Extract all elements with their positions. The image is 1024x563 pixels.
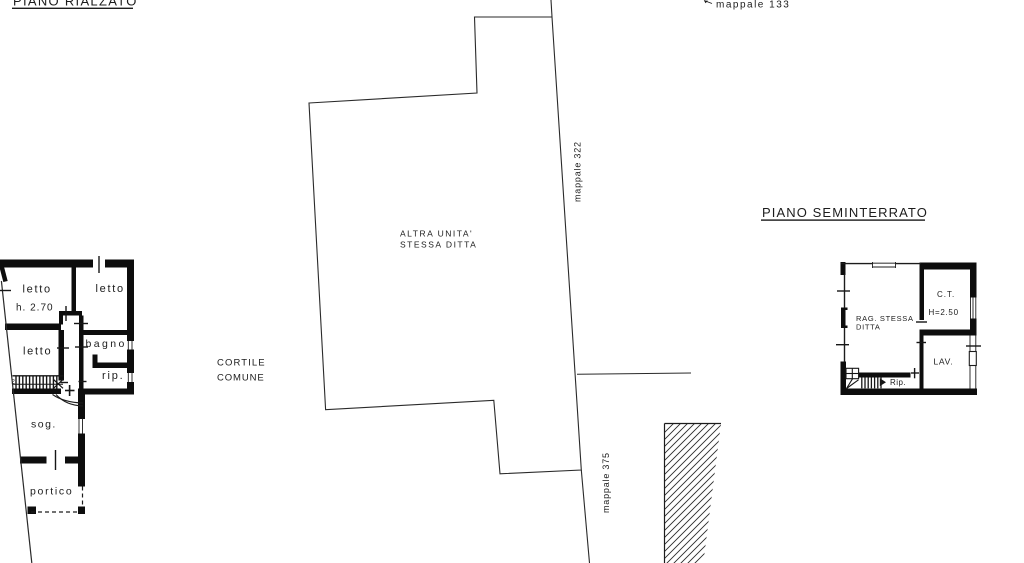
svg-text:STESSA DITTA: STESSA DITTA	[400, 240, 477, 250]
svg-text:mappale 322: mappale 322	[573, 141, 583, 202]
svg-text:rip.: rip.	[102, 370, 124, 382]
svg-text:CORTILE: CORTILE	[217, 358, 266, 369]
svg-text:PIANO SEMINTERRATO: PIANO SEMINTERRATO	[762, 205, 928, 220]
svg-text:C.T.: C.T.	[937, 290, 955, 299]
svg-text:letto: letto	[23, 346, 52, 358]
svg-text:DITTA: DITTA	[856, 323, 881, 332]
svg-text:sog.: sog.	[31, 419, 57, 431]
svg-text:h. 2.70: h. 2.70	[16, 303, 54, 314]
svg-text:ALTRA UNITA': ALTRA UNITA'	[400, 229, 473, 239]
svg-text:LAV.: LAV.	[934, 357, 954, 367]
svg-text:mappale 375: mappale 375	[601, 452, 611, 513]
svg-text:H=2.50: H=2.50	[929, 308, 959, 317]
svg-text:letto: letto	[23, 284, 52, 296]
svg-text:Rip.: Rip.	[890, 378, 906, 387]
svg-text:mappale 133: mappale 133	[716, 0, 790, 11]
svg-text:COMUNE: COMUNE	[217, 373, 265, 384]
svg-text:bagno: bagno	[86, 338, 127, 350]
svg-text:letto: letto	[96, 283, 125, 295]
svg-text:portico: portico	[30, 486, 73, 498]
svg-text:PIANO RIALZATO: PIANO RIALZATO	[13, 0, 138, 9]
